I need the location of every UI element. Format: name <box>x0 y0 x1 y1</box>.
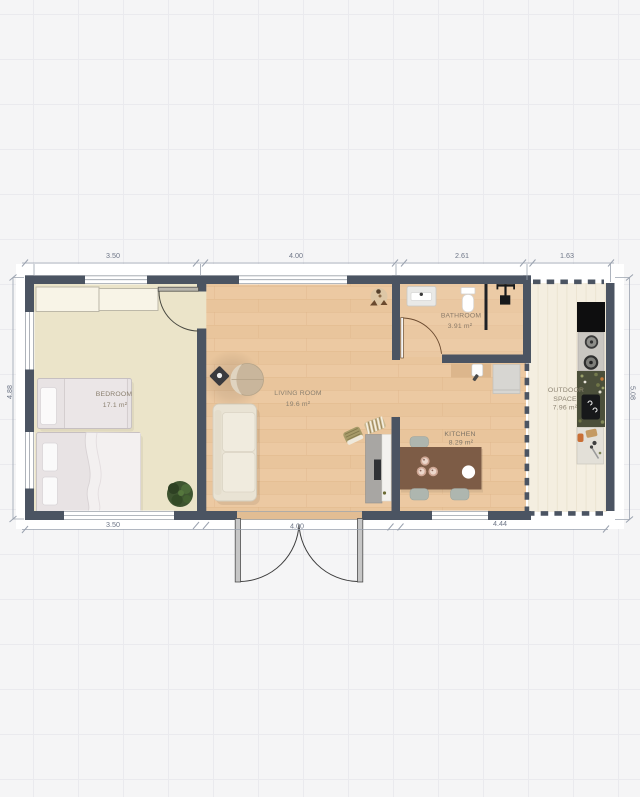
svg-text:KITCHEN: KITCHEN <box>444 431 475 438</box>
svg-text:5.08: 5.08 <box>629 386 638 400</box>
svg-text:SPACE: SPACE <box>553 396 577 403</box>
svg-text:8.29 m²: 8.29 m² <box>449 440 474 447</box>
svg-text:4.00: 4.00 <box>290 522 304 531</box>
svg-text:4.00: 4.00 <box>289 251 303 260</box>
svg-text:1.63: 1.63 <box>560 251 574 260</box>
svg-text:4.44: 4.44 <box>493 519 507 528</box>
svg-text:3.91 m²: 3.91 m² <box>448 323 473 330</box>
svg-text:LIVING ROOM: LIVING ROOM <box>274 390 322 397</box>
svg-text:4.88: 4.88 <box>5 385 14 399</box>
svg-text:BEDROOM: BEDROOM <box>96 391 133 398</box>
svg-text:OUTDOOR: OUTDOOR <box>548 387 584 394</box>
svg-text:19.6 m²: 19.6 m² <box>286 401 311 408</box>
svg-text:BATHROOM: BATHROOM <box>441 313 482 320</box>
svg-text:17.1 m²: 17.1 m² <box>103 402 128 409</box>
svg-text:3.50: 3.50 <box>106 251 120 260</box>
svg-text:2.61: 2.61 <box>455 251 469 260</box>
svg-text:7.96 m²: 7.96 m² <box>553 405 578 412</box>
svg-text:3.50: 3.50 <box>106 520 120 529</box>
